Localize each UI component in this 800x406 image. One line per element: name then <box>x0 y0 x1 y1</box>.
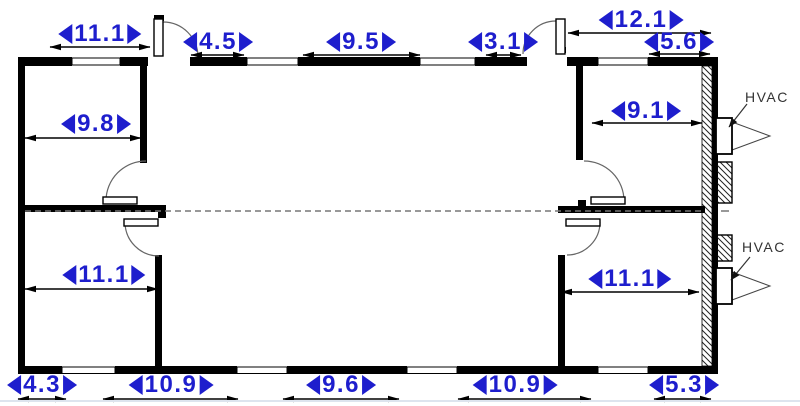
dim-arrow-left-icon <box>183 32 197 52</box>
right-wall-hatch <box>702 66 712 366</box>
dim-arrow-right-icon <box>667 101 681 121</box>
dim-arrow-right-icon <box>700 32 714 52</box>
window <box>247 58 298 65</box>
dimension-value: 11.1 <box>74 22 125 46</box>
dim-arrow-right-icon <box>543 375 557 395</box>
dim-arrow-right-icon <box>705 375 719 395</box>
dimension-label-bottom-3: 9.6 <box>306 373 376 397</box>
dim-arrow-right-icon <box>199 375 213 395</box>
door-leaf <box>103 197 137 204</box>
walls <box>18 15 718 374</box>
dimension-label-room-bottom-right: 11.1 <box>588 267 671 291</box>
wall-segment <box>18 57 25 374</box>
dimension-label-top-door-right: 3.1 <box>468 30 538 54</box>
dimension-label-top-door-left: 4.5 <box>183 30 253 54</box>
dimension-label-bottom-4: 10.9 <box>473 373 558 397</box>
dim-arrow-left-icon <box>62 265 76 285</box>
wall-segment <box>712 57 718 374</box>
hvac-unit-lower <box>716 257 770 304</box>
hvac-unit-upper <box>716 104 770 154</box>
window <box>420 58 475 65</box>
dimension-value: 5.3 <box>665 373 703 397</box>
wall-segment <box>648 57 718 66</box>
wall-segment <box>120 57 148 66</box>
dimension-value: 4.3 <box>23 373 61 397</box>
dimension-label-top-left: 11.1 <box>58 22 141 46</box>
dim-arrow-left-icon <box>611 101 625 121</box>
dim-arrow-right-icon <box>63 375 77 395</box>
dimension-value: 9.8 <box>77 112 115 136</box>
wall-segment <box>155 255 162 366</box>
dim-arrow-right-icon <box>669 10 683 30</box>
door-arc <box>567 222 600 255</box>
dim-arrow-left-icon <box>306 375 320 395</box>
dimension-label-bottom-1: 4.3 <box>7 373 77 397</box>
vent-hatched-box <box>717 235 732 261</box>
wall-segment <box>567 57 598 66</box>
bottom-divider <box>0 400 800 402</box>
dimension-value: 3.1 <box>484 30 522 54</box>
wall-segment <box>558 206 705 213</box>
dim-arrow-right-icon <box>658 269 672 289</box>
window <box>598 58 648 65</box>
door-leaf <box>556 19 565 54</box>
wall-segment <box>558 255 565 366</box>
window <box>407 367 457 374</box>
dimension-label-top-center: 9.5 <box>326 30 396 54</box>
dim-arrow-left-icon <box>129 375 143 395</box>
dim-arrow-left-icon <box>473 375 487 395</box>
dimension-value: 4.5 <box>199 30 237 54</box>
dim-arrow-right-icon <box>382 32 396 52</box>
dimension-value: 10.9 <box>145 373 198 397</box>
dimension-value: 9.5 <box>342 30 380 54</box>
vent-hatched-box <box>717 162 732 203</box>
hvac-cone <box>732 272 770 300</box>
dimension-label-room-top-left: 9.8 <box>61 112 131 136</box>
wall-segment <box>140 66 147 163</box>
floor-plan-drawing <box>0 0 800 406</box>
dim-arrow-left-icon <box>588 269 602 289</box>
dimension-value: 5.6 <box>660 30 698 54</box>
door-swing-arcs <box>106 21 624 256</box>
window <box>72 58 120 65</box>
dim-arrow-left-icon <box>468 32 482 52</box>
dimension-label-bottom-2: 10.9 <box>129 373 214 397</box>
hvac-leader-arrow <box>729 104 747 127</box>
wall-segment <box>475 57 527 66</box>
dim-arrow-left-icon <box>61 114 75 134</box>
wall-nub <box>578 200 586 207</box>
hvac-label-upper: HVAC <box>745 90 789 104</box>
door-leaf <box>566 219 600 226</box>
door-arc <box>125 222 159 256</box>
dimension-label-bottom-5: 5.3 <box>649 373 719 397</box>
dimension-value: 10.9 <box>489 373 542 397</box>
hvac-box <box>716 268 732 304</box>
hvac-box <box>716 118 732 154</box>
dimension-value: 9.6 <box>322 373 360 397</box>
dimension-value: 11.1 <box>78 263 129 287</box>
window <box>237 367 287 374</box>
door-arc <box>584 161 624 201</box>
dimension-label-top-right-span: 5.6 <box>644 30 714 54</box>
wall-segment <box>298 57 420 66</box>
dim-arrow-left-icon <box>599 10 613 30</box>
dim-arrow-left-icon <box>58 24 72 44</box>
dim-arrow-right-icon <box>524 32 538 52</box>
wall-nub <box>158 212 166 218</box>
dim-arrow-right-icon <box>128 24 142 44</box>
wall-segment <box>190 57 247 66</box>
dim-arrow-left-icon <box>7 375 21 395</box>
dimension-label-room-top-right: 9.1 <box>611 99 681 123</box>
dim-arrow-left-icon <box>644 32 658 52</box>
dim-arrow-right-icon <box>239 32 253 52</box>
dim-arrow-right-icon <box>132 265 146 285</box>
dimension-value: 11.1 <box>604 267 655 291</box>
floor-plan: 11.1 4.5 9.5 3.1 12.1 5.6 9.8 9.1 11.1 <box>0 0 800 406</box>
dimension-arrows <box>18 33 711 399</box>
dim-arrow-left-icon <box>649 375 663 395</box>
hvac-label-lower: HVAC <box>742 240 786 254</box>
dim-arrow-left-icon <box>326 32 340 52</box>
dim-arrow-right-icon <box>117 114 131 134</box>
wall-segment <box>576 66 583 160</box>
dimension-value: 9.1 <box>627 99 665 123</box>
door-leaf <box>591 197 625 204</box>
door-leaf <box>124 219 158 226</box>
dim-arrow-right-icon <box>362 375 376 395</box>
dimension-label-room-bottom-left: 11.1 <box>62 263 145 287</box>
door-leaf <box>154 19 163 56</box>
hvac-cone <box>732 122 770 150</box>
door-arc <box>106 161 146 201</box>
wall-segment <box>18 57 72 66</box>
window <box>598 367 648 374</box>
